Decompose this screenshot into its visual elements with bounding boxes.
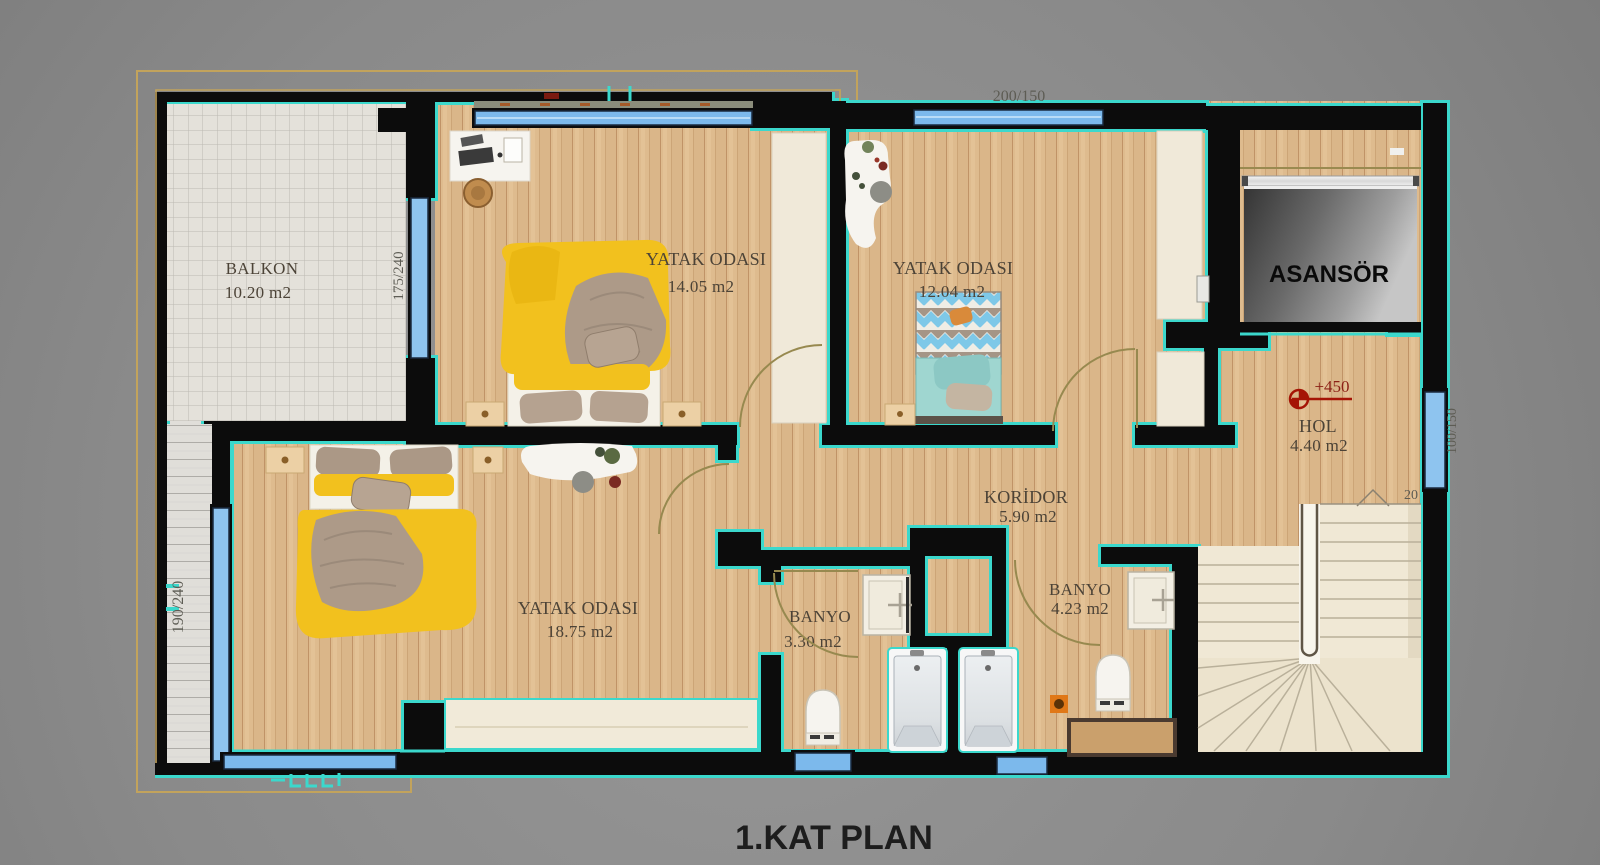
- svg-text:1.KAT PLAN: 1.KAT PLAN: [735, 819, 933, 857]
- svg-text:ASANSÖR: ASANSÖR: [1269, 261, 1389, 288]
- svg-text:BANYO: BANYO: [789, 607, 851, 626]
- svg-text:200/150: 200/150: [993, 88, 1045, 105]
- svg-text:4.40 m2: 4.40 m2: [1290, 436, 1348, 455]
- svg-text:YATAK ODASI: YATAK ODASI: [646, 249, 766, 269]
- svg-text:HOL: HOL: [1299, 416, 1337, 436]
- svg-text:+450: +450: [1314, 377, 1349, 396]
- svg-text:4.23 m2: 4.23 m2: [1051, 599, 1109, 618]
- svg-text:BALKON: BALKON: [226, 259, 299, 278]
- svg-text:18.75 m2: 18.75 m2: [547, 622, 614, 641]
- svg-text:100/150: 100/150: [1445, 408, 1460, 454]
- svg-text:12.04 m2: 12.04 m2: [919, 282, 986, 301]
- svg-text:YATAK ODASI: YATAK ODASI: [518, 598, 638, 618]
- svg-text:5.90 m2: 5.90 m2: [999, 507, 1057, 526]
- svg-text:10.20 m2: 10.20 m2: [225, 283, 292, 302]
- svg-text:175/240: 175/240: [391, 251, 407, 300]
- svg-text:BANYO: BANYO: [1049, 580, 1111, 599]
- svg-text:3.30 m2: 3.30 m2: [784, 632, 842, 651]
- svg-text:14.05 m2: 14.05 m2: [668, 277, 735, 296]
- svg-text:YATAK ODASI: YATAK ODASI: [893, 258, 1013, 278]
- svg-text:190/240: 190/240: [170, 581, 187, 633]
- svg-text:KORİDOR: KORİDOR: [984, 487, 1068, 507]
- svg-text:20: 20: [1404, 488, 1418, 503]
